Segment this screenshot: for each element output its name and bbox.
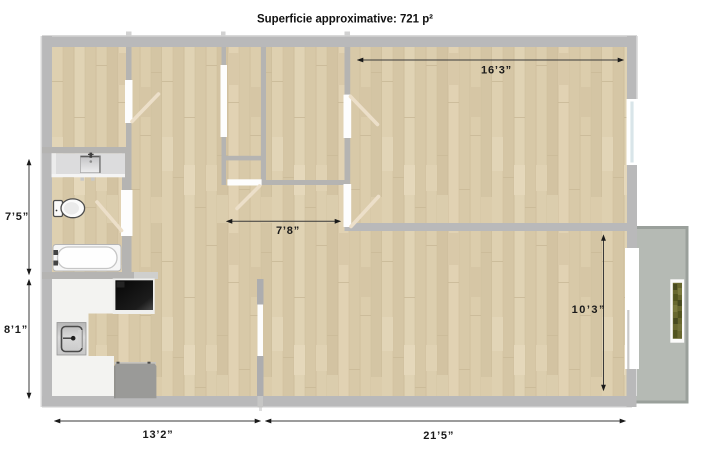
svg-text:10’3”: 10’3”: [572, 304, 606, 316]
svg-text:13’2”: 13’2”: [143, 429, 174, 441]
svg-text:7’8”: 7’8”: [276, 225, 300, 237]
svg-text:Superficie approximative: 721: Superficie approximative: 721 p²: [257, 12, 433, 26]
svg-text:7’5”: 7’5”: [5, 211, 29, 223]
svg-text:16’3”: 16’3”: [481, 65, 512, 77]
svg-text:21’5”: 21’5”: [423, 430, 454, 442]
svg-text:8’1”: 8’1”: [4, 324, 28, 336]
